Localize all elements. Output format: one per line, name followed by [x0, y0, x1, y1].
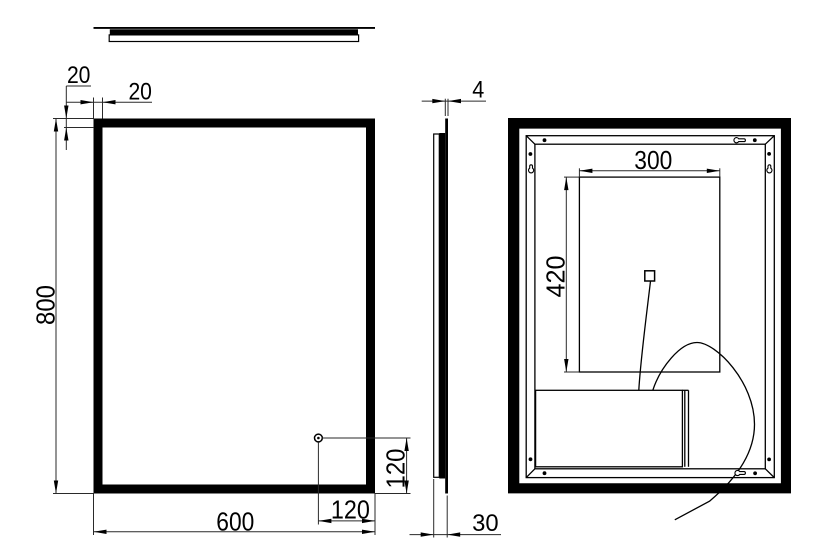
svg-text:30: 30	[472, 510, 499, 537]
svg-text:300: 300	[634, 145, 672, 175]
svg-text:800: 800	[31, 285, 61, 325]
svg-text:4: 4	[472, 77, 484, 104]
svg-text:20: 20	[67, 62, 91, 89]
svg-text:120: 120	[331, 494, 370, 524]
svg-text:420: 420	[540, 256, 570, 298]
svg-text:20: 20	[128, 79, 152, 106]
svg-text:120: 120	[381, 449, 411, 489]
svg-text:600: 600	[216, 507, 254, 537]
